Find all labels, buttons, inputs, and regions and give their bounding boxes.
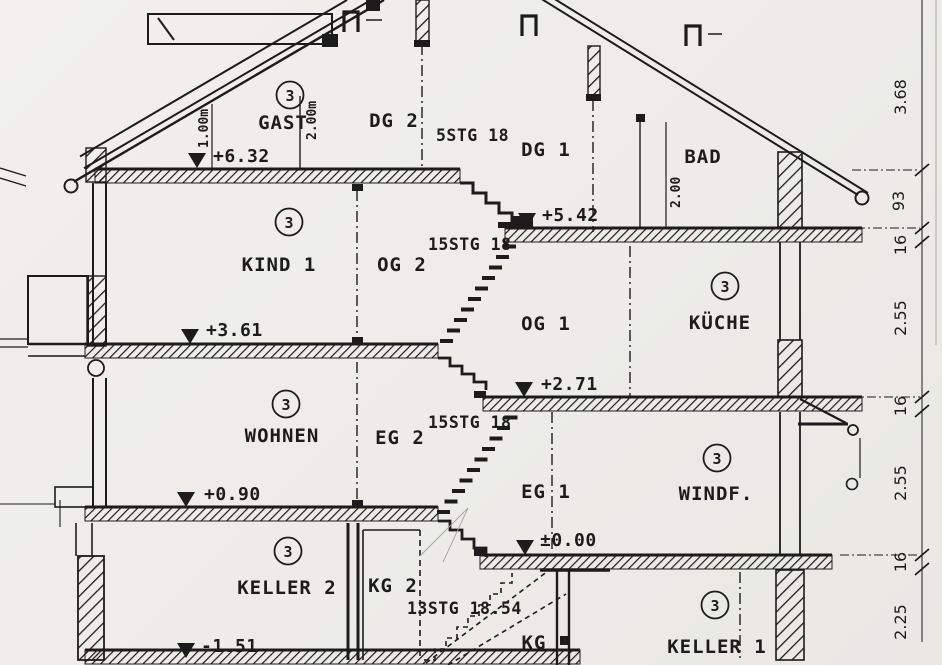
gutter-left-icon — [65, 180, 78, 193]
level-triangle-icon — [181, 329, 199, 344]
section-drawing: +6.32 +5.42 +3.61 +2.71 +0.90 ±0.00 -1.5… — [0, 0, 942, 665]
section-drawing-sheet: +6.32 +5.42 +3.61 +2.71 +0.90 ±0.00 -1.5… — [0, 0, 942, 665]
stair-labels: 5STG 18 15STG 18 15STG 18 13STG 18.54 — [407, 126, 522, 618]
level-triangle-icon — [515, 382, 533, 397]
stair-label-kg: 13STG 18.54 — [407, 599, 522, 618]
room-label-kg: KG — [522, 632, 547, 654]
unit-badge-value: 3 — [712, 450, 721, 468]
room-labels: GAST DG 2 DG 1 BAD KIND 1 OG 2 OG 1 KÜCH… — [237, 110, 767, 658]
level-542: +5.42 — [542, 205, 599, 226]
room-label-eg1: EG 1 — [521, 481, 571, 503]
canopy-hook-icon — [848, 425, 858, 435]
slab-eg2-090 — [85, 507, 438, 521]
dim-slab3: 16 — [891, 552, 910, 572]
dim-og: 2.55 — [891, 300, 910, 336]
room-label-kueche: KÜCHE — [689, 310, 751, 334]
stair-label-og: 15STG 18 — [428, 235, 511, 254]
unit-badge-kueche: 3 — [712, 273, 739, 300]
dim-kg: 2.25 — [891, 604, 910, 640]
unit-badge-value: 3 — [281, 396, 290, 414]
room-label-kind1: KIND 1 — [242, 254, 317, 276]
stair-flight-og — [440, 247, 516, 342]
room-label-og2: OG 2 — [377, 254, 427, 276]
roof-posts — [414, 0, 601, 101]
height-mark-knee-wall: 1.00m — [197, 109, 212, 148]
stair-flight-dg — [460, 183, 512, 223]
unit-badge-value: 3 — [285, 87, 294, 105]
railing-anchor-icon — [88, 360, 104, 376]
room-label-windf: WINDF. — [679, 483, 754, 505]
level-271: +2.71 — [541, 374, 598, 395]
stair-run-og1 — [438, 358, 486, 390]
room-label-kg2: KG 2 — [368, 575, 418, 597]
unit-badge-value: 3 — [283, 543, 292, 561]
slab-keller-floor — [85, 650, 580, 664]
level-triangle-icon — [177, 492, 195, 507]
balcony-detail — [0, 276, 106, 376]
unit-badge-value: 3 — [284, 214, 293, 232]
room-label-gast: GAST — [258, 112, 308, 134]
level-000: ±0.00 — [540, 530, 597, 551]
dim-slab2: 16 — [891, 396, 910, 416]
level-triangle-icon — [516, 540, 534, 555]
unit-badge-kind1: 3 — [276, 209, 303, 236]
height-mark-bad: 2.00 — [669, 177, 684, 208]
level-361: +3.61 — [206, 320, 263, 341]
unit-badge-wohnen: 3 — [273, 391, 300, 418]
slab-dg2-632 — [95, 169, 460, 183]
unit-badge-windf: 3 — [704, 445, 731, 472]
unit-badge-keller1: 3 — [702, 592, 729, 619]
unit-badge-gast: 3 — [277, 82, 304, 109]
level-m151: -1.51 — [201, 636, 258, 657]
purlin-hook-icons — [344, 12, 722, 46]
stair-label-eg: 15STG 18 — [428, 413, 511, 432]
dimension-chain: 3.68 93 16 2.55 16 2.55 16 2.25 — [840, 0, 929, 642]
left-exterior-wall — [0, 148, 106, 660]
height-mark-gast: 2.00m — [305, 101, 320, 140]
slab-eg1-000 — [474, 549, 832, 570]
room-label-keller2: KELLER 2 — [237, 577, 337, 599]
room-label-wohnen: WOHNEN — [245, 425, 320, 447]
room-label-dg2: DG 2 — [369, 110, 419, 132]
unit-badge-value: 3 — [710, 597, 719, 615]
level-090: +0.90 — [204, 484, 261, 505]
dim-roof: 3.68 — [891, 79, 910, 115]
dim-knee: 93 — [889, 191, 908, 211]
room-label-keller1: KELLER 1 — [667, 636, 767, 658]
room-label-dg1: DG 1 — [521, 139, 571, 161]
slab-og2-361 — [85, 344, 438, 358]
room-label-og1: OG 1 — [521, 313, 571, 335]
unit-badge-keller2: 3 — [275, 538, 302, 565]
room-label-eg2: EG 2 — [375, 427, 425, 449]
dim-slab1: 16 — [891, 235, 910, 255]
downpipe-hook-icon — [847, 479, 858, 490]
level-632: +6.32 — [213, 146, 270, 167]
level-triangle-icon — [188, 153, 206, 168]
room-label-bad: BAD — [684, 146, 721, 168]
gutter-right-icon — [856, 192, 869, 205]
dim-eg: 2.55 — [891, 465, 910, 501]
unit-badge-value: 3 — [720, 278, 729, 296]
terrace-step — [55, 487, 93, 507]
stair-label-dg: 5STG 18 — [436, 126, 509, 145]
slab-og1-271 — [474, 391, 862, 411]
